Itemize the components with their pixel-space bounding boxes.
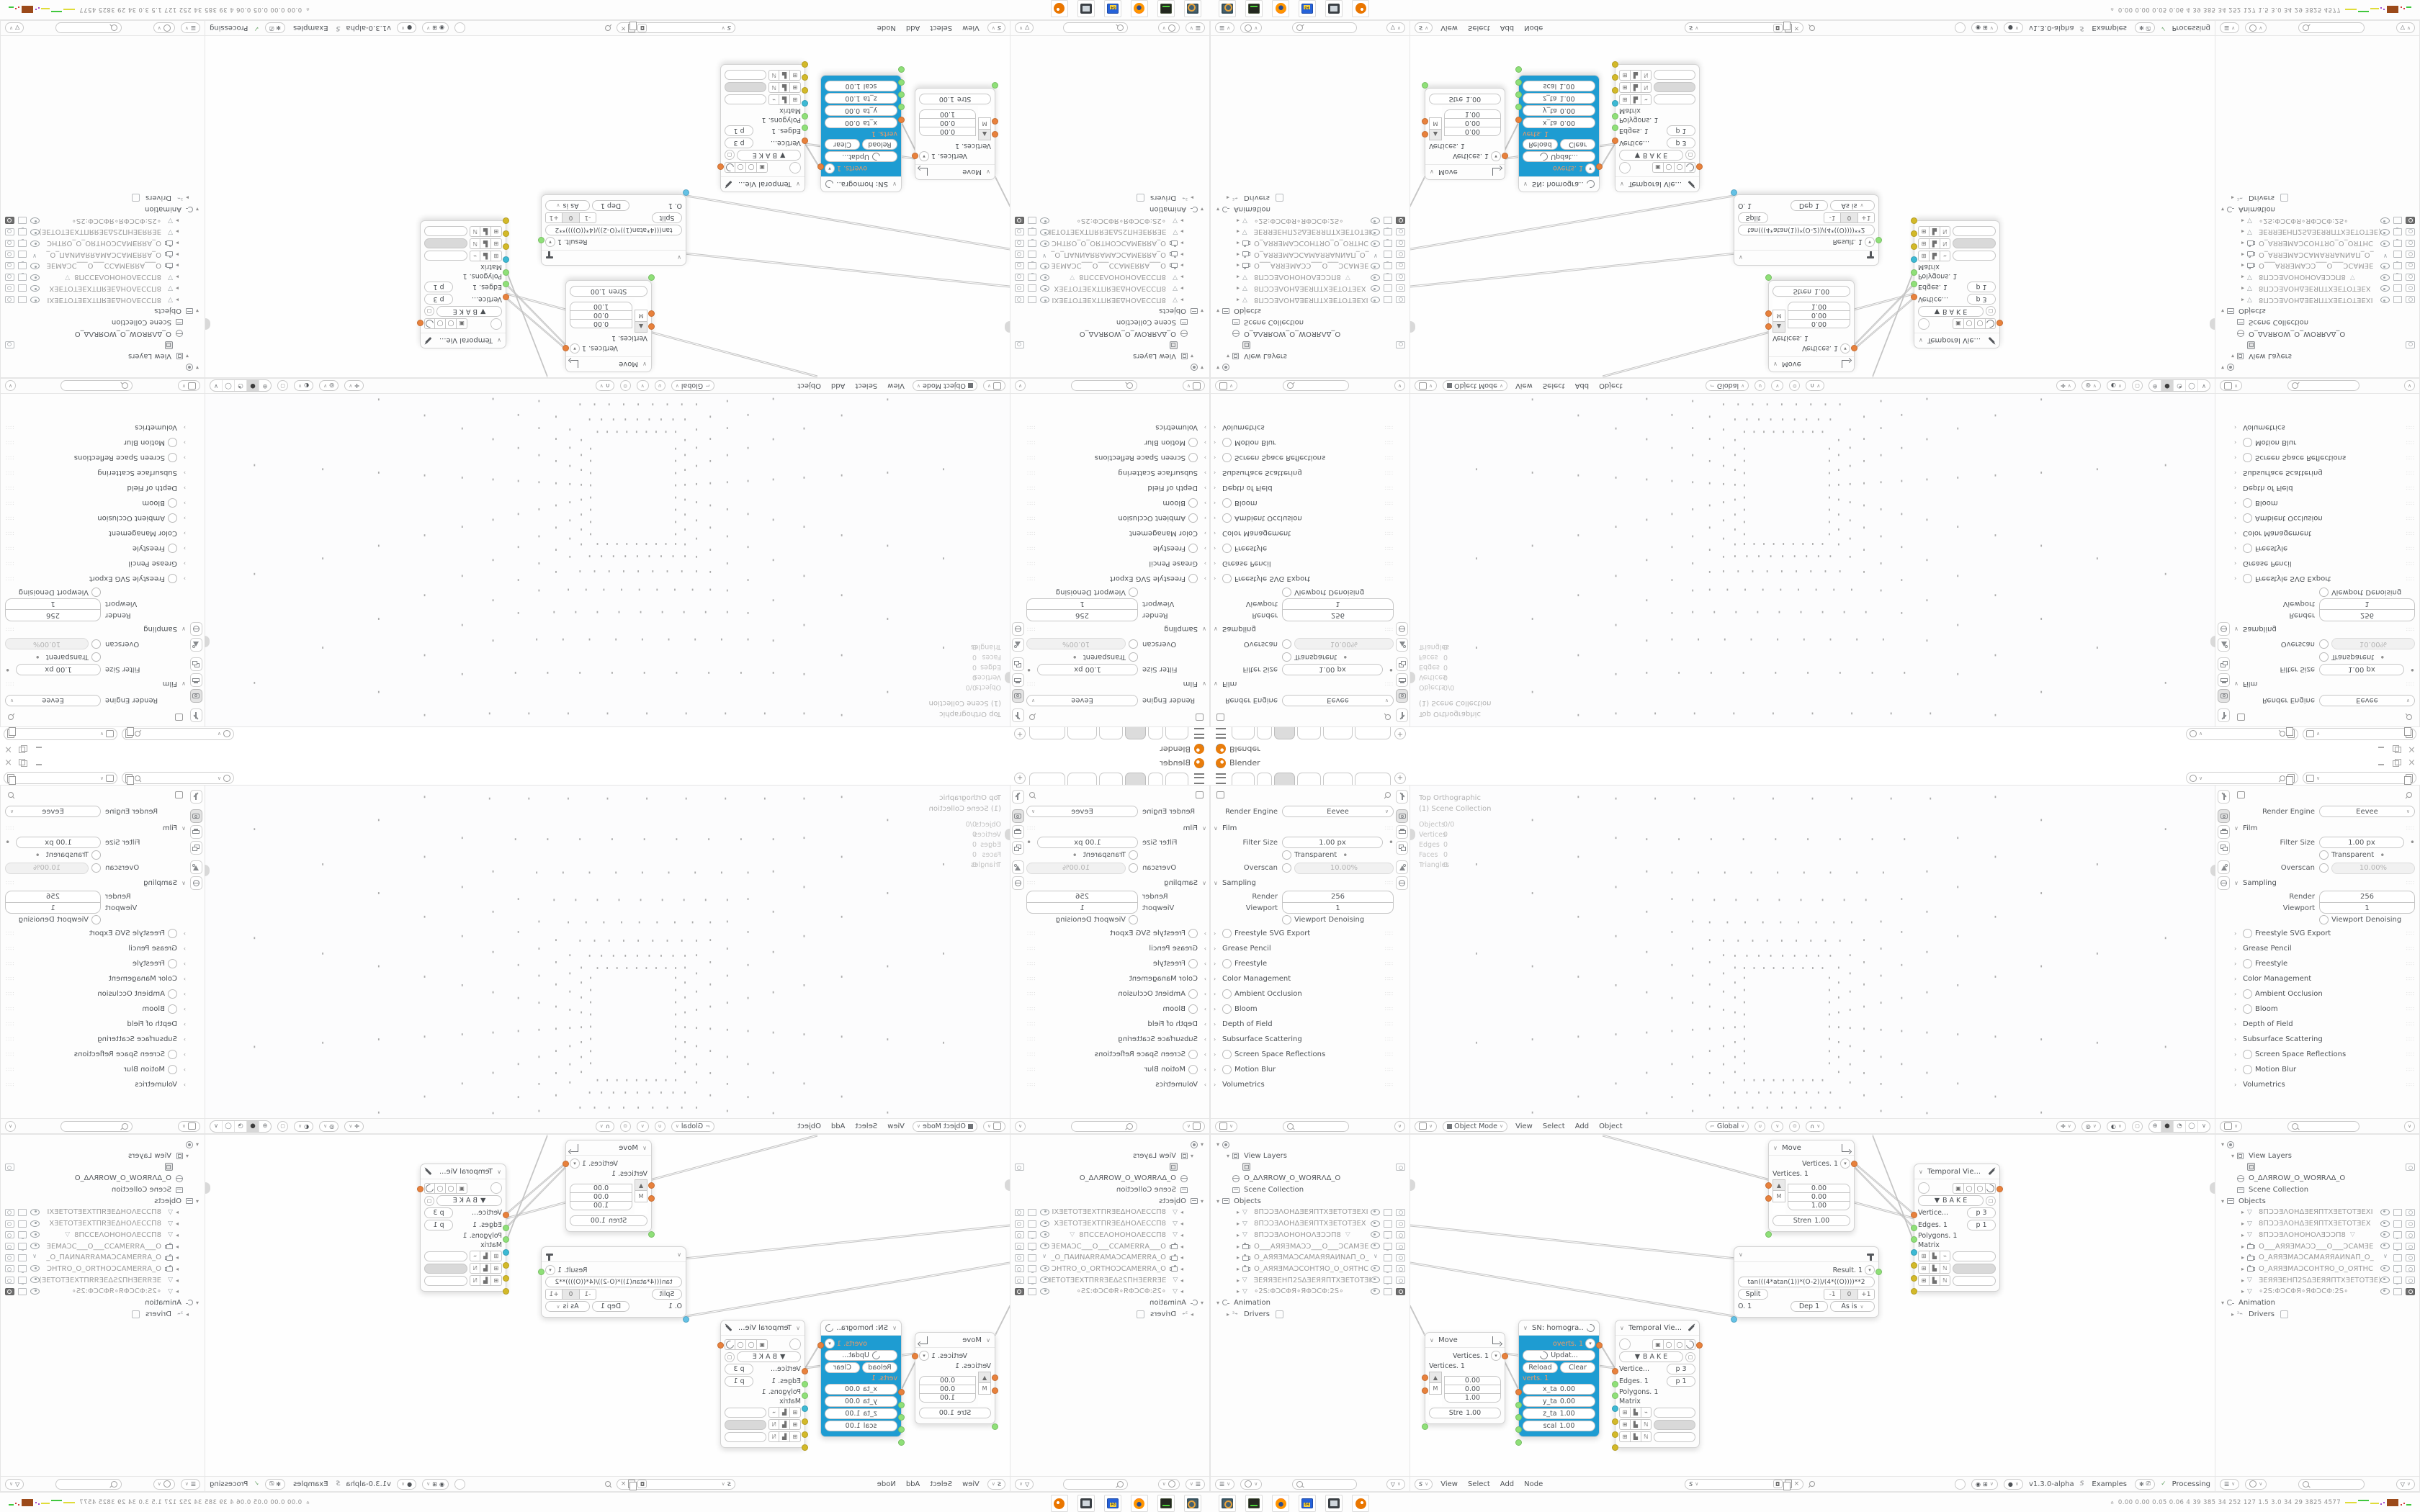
properties-tab-view-layer[interactable] bbox=[1396, 841, 1408, 855]
outliner-row[interactable]: ▾Animation bbox=[1013, 204, 1206, 215]
section-header[interactable]: ›Bloom bbox=[142, 1004, 186, 1014]
hide-toggle-icon[interactable] bbox=[1371, 263, 1380, 269]
hide-toggle-icon[interactable] bbox=[1371, 1231, 1380, 1238]
node-header[interactable]: ∨SN: homogra.. bbox=[1519, 176, 1599, 192]
section-header[interactable]: ∨Sampling bbox=[143, 626, 186, 634]
disable-render-icon[interactable] bbox=[2406, 251, 2415, 258]
outliner-row[interactable]: ▾View Layers bbox=[2218, 351, 2416, 362]
properties-tab-view-layer[interactable] bbox=[2218, 657, 2230, 671]
socket-l[interactable] bbox=[802, 1418, 808, 1425]
hide-toggle-icon[interactable] bbox=[1040, 1254, 1048, 1259]
step-button[interactable]: 0 bbox=[563, 212, 579, 223]
properties-tab-world[interactable] bbox=[2218, 876, 2230, 890]
value-pill[interactable] bbox=[1654, 1420, 1695, 1430]
new-view-layer-icon[interactable] bbox=[2406, 774, 2413, 783]
vector-value[interactable]: 0.00 bbox=[1444, 1376, 1501, 1385]
mode-dropdown[interactable]: As is∨ bbox=[1830, 1301, 1875, 1312]
mode-dropdown[interactable]: As is∨ bbox=[545, 1301, 590, 1312]
checkbox[interactable] bbox=[1188, 929, 1198, 938]
socket-l[interactable] bbox=[1765, 323, 1772, 330]
expand-icon[interactable]: ▸ bbox=[173, 274, 179, 280]
matrix-icon[interactable]: ⊞ bbox=[1918, 226, 1929, 237]
matrix-icon[interactable]: ⊞ bbox=[790, 82, 801, 93]
socket-r[interactable] bbox=[417, 1186, 423, 1192]
matrix-icon[interactable]: ⊞ bbox=[1619, 1407, 1630, 1418]
disable-render-icon[interactable] bbox=[1396, 1265, 1405, 1272]
node-move-2[interactable]: ∨MoveVertices. 1▾Vertices. 1▲M0.000.001.… bbox=[565, 280, 652, 372]
disable-render-icon[interactable] bbox=[5, 1243, 14, 1250]
section-header[interactable]: ›Depth of Field bbox=[1147, 484, 1206, 492]
expand-icon[interactable]: ▸ bbox=[1178, 1220, 1183, 1227]
socket-l[interactable] bbox=[992, 1387, 998, 1394]
checkbox[interactable] bbox=[2319, 639, 2329, 649]
editor-type-button[interactable]: ∨ bbox=[178, 381, 200, 392]
socket-l[interactable] bbox=[802, 1368, 808, 1374]
workspace-tab[interactable] bbox=[1232, 727, 1255, 739]
render-engine-dropdown[interactable]: Eevee bbox=[2319, 695, 2415, 706]
view-layer-selector[interactable]: ∨ bbox=[4, 772, 117, 784]
examples-menu[interactable]: Examples bbox=[2089, 24, 2129, 32]
vector-value[interactable]: 0.00 bbox=[1788, 311, 1850, 320]
tray-expand-icon[interactable]: « bbox=[2108, 1500, 2115, 1505]
menu-add[interactable]: Add bbox=[829, 382, 847, 390]
step-button[interactable]: 0 bbox=[563, 1289, 579, 1300]
hide-toggle-icon[interactable] bbox=[1040, 217, 1049, 224]
search-input[interactable] bbox=[55, 23, 122, 34]
checkbox[interactable] bbox=[1222, 574, 1232, 583]
section-header[interactable]: ›Depth of Field bbox=[2234, 484, 2293, 492]
value-slider[interactable]: scal1.00 bbox=[825, 1421, 897, 1431]
socket-r[interactable] bbox=[538, 237, 544, 243]
section-header[interactable]: ›Freestyle bbox=[1153, 544, 1206, 553]
hide-toggle-icon[interactable] bbox=[1371, 1243, 1380, 1249]
render-preview-toggle[interactable]: ▢ bbox=[2132, 1121, 2143, 1132]
outliner-row[interactable]: ▸O_ΑЯЯƎΜΑϽϹΑΜΑЯЯΑͶΝΑΠ_O_ bbox=[1013, 248, 1206, 260]
strength-slider[interactable]: Stre1.00 bbox=[919, 94, 991, 104]
value-slider[interactable]: x_ta0.00 bbox=[825, 117, 897, 128]
disable-render-icon[interactable] bbox=[1015, 1209, 1024, 1216]
editor-type-button[interactable]: S∨ bbox=[987, 1479, 1005, 1490]
outliner-row[interactable]: Scene Collection bbox=[4, 1184, 202, 1196]
brush-icon[interactable]: ▙ bbox=[480, 1263, 491, 1274]
properties-tab-scene[interactable] bbox=[1012, 638, 1024, 652]
processing-toggle[interactable]: Processing bbox=[210, 1480, 248, 1488]
show-toggle[interactable] bbox=[490, 318, 502, 330]
socket-l[interactable] bbox=[992, 82, 998, 89]
workspace-tab[interactable] bbox=[1323, 727, 1353, 739]
node-temporal-viewer-2[interactable]: ∨Temporal Vie...▣◯◯▼B A K E▢Vertice...p … bbox=[1914, 1164, 2000, 1292]
hide-toggle-icon[interactable] bbox=[2382, 1254, 2390, 1259]
section-header[interactable]: ›Color Management bbox=[1214, 529, 1291, 537]
workspace-tab[interactable] bbox=[1355, 727, 1391, 739]
socket-l[interactable] bbox=[992, 118, 998, 125]
display-mode-dropdown[interactable]: ☰∨ bbox=[2220, 1479, 2239, 1490]
disable-render-icon[interactable] bbox=[5, 1277, 14, 1284]
options-dropdown[interactable]: ∨ bbox=[5, 381, 16, 392]
checkbox[interactable] bbox=[1222, 544, 1232, 553]
expand-icon[interactable]: ▾ bbox=[2221, 1300, 2227, 1306]
expand-icon[interactable]: ▸ bbox=[1178, 1288, 1183, 1295]
node-header[interactable]: ∨Temporal Vie... bbox=[1615, 1320, 1699, 1336]
checkbox[interactable] bbox=[1222, 498, 1232, 508]
disable-viewport-icon[interactable] bbox=[2393, 1243, 2402, 1250]
search-input[interactable] bbox=[1292, 23, 1357, 34]
checkbox[interactable] bbox=[1222, 513, 1232, 523]
node-tree-selector[interactable]: S∨ ◘ × bbox=[1685, 23, 1803, 34]
unlink-icon[interactable]: × bbox=[621, 1480, 627, 1488]
render-engine-dropdown[interactable]: Eevee bbox=[1282, 695, 1394, 706]
mode-icon[interactable]: ▣ bbox=[757, 1339, 768, 1350]
section-header[interactable]: ∨Film bbox=[2234, 824, 2257, 832]
display-mode-group[interactable]: ▣◯◯ bbox=[1652, 1339, 1695, 1350]
properties-tab-render[interactable] bbox=[1396, 689, 1408, 703]
node-formula[interactable]: ∨Result. 1▾tan(((4*atan(1))*(O-2))/(4*((… bbox=[541, 194, 686, 266]
disable-render-icon[interactable] bbox=[1015, 1265, 1024, 1272]
animate-dot-icon[interactable]: • bbox=[1026, 840, 1031, 845]
socket-r[interactable] bbox=[1996, 1186, 2003, 1192]
area-handle[interactable] bbox=[1005, 321, 1010, 333]
proportional-edit-toggle[interactable]: ⊙ bbox=[1789, 381, 1800, 392]
expand-icon[interactable]: ▸ bbox=[2241, 1209, 2247, 1215]
value-field[interactable]: 1 bbox=[5, 598, 101, 610]
outliner-row[interactable]: ▾ bbox=[1214, 1139, 1407, 1151]
section-header[interactable]: ›Screen Space Reflections bbox=[1095, 1050, 1206, 1059]
section-header[interactable]: ›Motion Blur bbox=[124, 438, 186, 447]
mode-icon[interactable]: ◯ bbox=[1663, 163, 1674, 174]
socket-l[interactable] bbox=[648, 274, 655, 281]
properties-tab-tool[interactable] bbox=[1012, 790, 1024, 804]
brush-icon[interactable]: ▙ bbox=[480, 226, 491, 237]
select-button[interactable]: ▢ bbox=[1685, 1352, 1695, 1362]
disable-render-icon[interactable] bbox=[1396, 240, 1405, 247]
taskbar-app-firefox[interactable] bbox=[1272, 0, 1289, 17]
disable-render-icon[interactable] bbox=[1396, 228, 1405, 235]
properties-pin-icon[interactable] bbox=[1028, 713, 1036, 721]
area-handle[interactable] bbox=[2210, 318, 2215, 330]
hide-toggle-icon[interactable] bbox=[30, 1254, 38, 1259]
properties-tab-tool[interactable] bbox=[1396, 708, 1408, 722]
outliner-row[interactable]: ▸O_ΑЯЯƎΜΑϽϹΟΗΤЯΟ_O_ΟЯΤΗϹ bbox=[1214, 238, 1407, 249]
socket-l[interactable] bbox=[503, 1262, 509, 1269]
disable-viewport-icon[interactable] bbox=[18, 274, 27, 281]
formula-input[interactable]: tan(((4*atan(1))*(O-2))/(4*((O))))**2 bbox=[545, 225, 682, 235]
step-button[interactable]: -1 bbox=[1824, 212, 1840, 223]
checkbox[interactable] bbox=[168, 1004, 177, 1014]
properties-pin-icon[interactable] bbox=[1384, 713, 1391, 721]
area-handle[interactable] bbox=[2210, 1182, 2215, 1194]
filter-icon-dropdown[interactable]: ∨ bbox=[1158, 23, 1180, 34]
matrix-icon[interactable]: ⊞ bbox=[491, 1251, 502, 1261]
disable-viewport-icon[interactable] bbox=[2393, 1254, 2402, 1261]
value-pill[interactable] bbox=[725, 1420, 766, 1430]
menu-view[interactable]: View bbox=[960, 24, 982, 32]
value-pill[interactable] bbox=[424, 1264, 467, 1274]
disable-viewport-icon[interactable] bbox=[18, 251, 27, 258]
socket-l[interactable] bbox=[898, 1414, 905, 1421]
options-dropdown[interactable]: ∨ bbox=[1394, 1121, 1405, 1132]
processing-toggle[interactable]: Processing bbox=[210, 24, 248, 32]
curve-icon[interactable]: ℕ bbox=[768, 70, 779, 81]
properties-tab-scene[interactable] bbox=[1012, 860, 1024, 874]
overlays-dropdown[interactable]: ◎∨ bbox=[2081, 1121, 2101, 1132]
socket-l[interactable] bbox=[1515, 1439, 1522, 1446]
hide-toggle-icon[interactable] bbox=[2380, 263, 2390, 269]
section-header[interactable]: ›Color Management bbox=[2234, 975, 2311, 983]
vector-value[interactable]: 0.00 bbox=[570, 1193, 632, 1202]
value-pill[interactable] bbox=[424, 1276, 467, 1286]
snap-toggle[interactable]: ∪ bbox=[655, 381, 665, 392]
section-header[interactable]: ›Grease Pencil bbox=[1214, 945, 1271, 953]
value-slider[interactable]: 1.00 px bbox=[16, 664, 101, 675]
show-toggle[interactable] bbox=[490, 1182, 502, 1194]
taskbar-app-system-monitor[interactable] bbox=[1184, 1495, 1201, 1512]
workspace-tab[interactable] bbox=[1274, 727, 1295, 739]
section-header[interactable]: ›Screen Space Reflections bbox=[2234, 1050, 2346, 1059]
checkbox[interactable] bbox=[91, 639, 101, 649]
section-header[interactable]: ∨Film bbox=[2234, 680, 2257, 688]
menu-add[interactable]: Add bbox=[1498, 24, 1516, 32]
mode-dropdown[interactable]: Object Mode∨ bbox=[1443, 1121, 1507, 1132]
matrix-icon[interactable]: ⊞ bbox=[1918, 238, 1929, 249]
disable-viewport-icon[interactable] bbox=[2393, 284, 2402, 292]
socket-l[interactable] bbox=[1612, 87, 1618, 94]
checkbox[interactable] bbox=[1129, 863, 1138, 873]
disable-viewport-icon[interactable] bbox=[1384, 228, 1392, 235]
mode-icon[interactable]: ◯ bbox=[735, 163, 746, 174]
workspace-tab[interactable] bbox=[1297, 773, 1321, 785]
socket-l[interactable] bbox=[503, 256, 509, 263]
expand-icon[interactable]: ▸ bbox=[2241, 1277, 2247, 1284]
filter-icon-dropdown[interactable]: ∨ bbox=[2245, 23, 2267, 34]
disable-viewport-icon[interactable] bbox=[2393, 217, 2402, 224]
outliner-row[interactable]: Scene Collection bbox=[1013, 1184, 1206, 1196]
node-formula[interactable]: ∨Result. 1▾tan(((4*atan(1))*(O-2))/(4*((… bbox=[1734, 194, 1879, 266]
node-editor[interactable]: ∨MoveVertices. 1▾Vertices. 1▲M0.000.001.… bbox=[1410, 1134, 2215, 1492]
socket-l[interactable] bbox=[503, 243, 509, 250]
outliner-row[interactable]: ▸▽ƎΕЯЯƎΕΗΠ2ЅΔƎΕЯЯΠΤΧƎΕΤΟΤƎΕ) bbox=[2218, 226, 2416, 238]
refresh-icon[interactable] bbox=[1685, 1339, 1695, 1350]
outliner-row[interactable]: ▸▽8ΠϽϽƎΛΟΗΔƎΕЯΠΤΧƎΕΤΟΤƎΕΧ bbox=[2218, 1218, 2416, 1230]
editor-type-button[interactable]: ∨ bbox=[2220, 1121, 2242, 1132]
disable-render-icon[interactable] bbox=[2406, 228, 2415, 235]
disable-render-icon[interactable] bbox=[2406, 262, 2415, 269]
step-button[interactable]: +1 bbox=[545, 212, 563, 223]
node-editor[interactable]: ∨MoveVertices. 1▾Vertices. 1▲M0.000.001.… bbox=[205, 20, 1010, 378]
brush-icon[interactable]: ▙ bbox=[779, 1419, 790, 1430]
sv-tools-dropdown[interactable]: ✻⎚ bbox=[2135, 1479, 2155, 1490]
socket-r[interactable] bbox=[563, 345, 569, 351]
hide-toggle-icon[interactable] bbox=[1371, 1288, 1380, 1295]
node-sn-homography[interactable]: ∨SN: homogra..overts. 1▾Updat...ReloadCl… bbox=[820, 75, 902, 192]
hide-toggle-icon[interactable] bbox=[1371, 1220, 1380, 1227]
step-group[interactable]: -10+1 bbox=[1824, 1289, 1875, 1300]
add-workspace-button[interactable]: + bbox=[1394, 728, 1406, 739]
curve-icon[interactable]: ℕ bbox=[470, 238, 480, 249]
socket-l[interactable] bbox=[1911, 217, 1917, 224]
node-formula[interactable]: ∨Result. 1▾tan(((4*atan(1))*(O-2))/(4*((… bbox=[541, 1246, 686, 1318]
disable-render-icon[interactable] bbox=[2406, 284, 2415, 292]
copy-tree-icon[interactable] bbox=[1785, 1480, 1792, 1488]
taskbar-app-blender[interactable] bbox=[1352, 1495, 1369, 1512]
outliner-row[interactable]: ▸▽ƎΕЯЯƎΕΗΠ2ЅΔƎΕЯЯΠΤΧƎΕΤΟΤƎΕ) bbox=[2218, 1274, 2416, 1286]
checkbox[interactable] bbox=[1222, 1065, 1232, 1074]
menu-select[interactable]: Select bbox=[853, 382, 879, 390]
socket-r[interactable] bbox=[1875, 1269, 1882, 1275]
outliner-row[interactable]: ▸▽8ΠϽϽƎΛΟΗΔƎΕЯΠΤΧƎΕΤΟΤƎΕΧ bbox=[4, 1218, 202, 1230]
copy-tree-icon[interactable] bbox=[1785, 24, 1792, 32]
menu-object[interactable]: Object bbox=[1597, 382, 1625, 390]
filter-dropdown[interactable]: ▽∨ bbox=[1015, 1479, 1034, 1490]
search-input[interactable] bbox=[1292, 1479, 1357, 1490]
section-header[interactable]: ›Screen Space Reflections bbox=[1095, 453, 1206, 462]
socket-r[interactable] bbox=[1696, 1342, 1703, 1349]
section-header[interactable]: ›Motion Blur bbox=[124, 1065, 186, 1074]
properties-tab-world[interactable] bbox=[2218, 622, 2230, 636]
disable-viewport-icon[interactable] bbox=[1384, 1209, 1392, 1216]
area-handle[interactable] bbox=[205, 318, 210, 330]
split-button[interactable]: Split bbox=[1738, 1289, 1768, 1300]
socket-menu-button[interactable]: ▾ bbox=[1840, 343, 1850, 354]
menu-add[interactable]: Add bbox=[1573, 382, 1591, 390]
vector-value[interactable]: 1.00 bbox=[919, 1394, 976, 1403]
expand-icon[interactable]: ▸ bbox=[1237, 1266, 1242, 1272]
brush-icon[interactable]: ▙ bbox=[480, 238, 491, 249]
outliner-row[interactable]: ▸O_ΑЯЯƎΜΑϽϹΑΜΑЯЯΑͶΝΑΠ_O_ bbox=[1214, 1252, 1407, 1264]
mode-icon[interactable]: ▣ bbox=[1652, 1339, 1663, 1350]
section-header[interactable]: ›Subsurface Scattering bbox=[2234, 1035, 2323, 1043]
strength-slider[interactable]: Stren1.00 bbox=[570, 286, 647, 297]
outliner-row[interactable]: ▸O___ΑЯЯƎΜΑϽϽ___O___ϽϹΑΜƎΕ bbox=[1214, 1241, 1407, 1252]
value-slider[interactable]: y_ta0.00 bbox=[1523, 1396, 1595, 1407]
filter-dropdown[interactable]: ▽∨ bbox=[5, 23, 24, 34]
clear-button[interactable]: Clear bbox=[1560, 139, 1595, 150]
animate-dot-icon[interactable]: • bbox=[1072, 655, 1077, 660]
expand-icon[interactable]: ▸ bbox=[1237, 297, 1242, 303]
search-input[interactable] bbox=[1063, 1479, 1128, 1490]
value-field[interactable]: 1 bbox=[5, 902, 101, 914]
socket-l[interactable] bbox=[1515, 104, 1522, 110]
section-header[interactable]: ›Screen Space Reflections bbox=[74, 1050, 186, 1059]
render-preview-toggle[interactable]: ▢ bbox=[277, 381, 288, 392]
checkbox[interactable] bbox=[1188, 1065, 1198, 1074]
vector-value[interactable]: 0.00 bbox=[570, 320, 632, 329]
outliner-row[interactable]: ▾View Layers bbox=[4, 1151, 202, 1162]
properties-tab-world[interactable] bbox=[1396, 876, 1408, 890]
xray-shading-dropdown[interactable]: ◐∨ bbox=[2107, 1121, 2126, 1132]
checkbox[interactable] bbox=[2243, 513, 2252, 523]
expand-icon[interactable]: ▸ bbox=[2231, 194, 2237, 201]
disable-viewport-icon[interactable] bbox=[2393, 1220, 2402, 1228]
brush-icon[interactable]: ▙ bbox=[1630, 94, 1641, 105]
filter-dropdown[interactable]: ▽∨ bbox=[5, 1479, 24, 1490]
outliner-row[interactable]: ▸▽ƎΕЯЯƎΕΗΠ2ЅΔƎΕЯЯΠΤΧƎΕΤΟΤƎΕ) bbox=[4, 1274, 202, 1286]
outliner-row[interactable]: ▾Objects bbox=[2218, 1195, 2416, 1207]
menu-hamburger-icon[interactable] bbox=[1216, 728, 1226, 739]
node-header[interactable]: ∨Move bbox=[915, 1333, 995, 1348]
taskbar-app-floppy-64[interactable]: 64 bbox=[1299, 1495, 1316, 1512]
hide-toggle-icon[interactable] bbox=[1040, 263, 1049, 269]
expand-icon[interactable]: ▾ bbox=[1198, 1141, 1204, 1148]
expand-icon[interactable]: ▸ bbox=[2241, 251, 2247, 258]
disable-viewport-icon[interactable] bbox=[2393, 296, 2402, 303]
minimize-button[interactable] bbox=[2378, 745, 2385, 753]
show-toggle[interactable] bbox=[1918, 318, 1930, 330]
hide-toggle-icon[interactable] bbox=[2380, 285, 2390, 292]
expand-icon[interactable]: ▸ bbox=[183, 1311, 189, 1318]
outliner-row[interactable]: ▸▽8ΠϽϽƎΛΟΗΟΗΟΛƎϽϽΠ8 ▽ bbox=[1013, 271, 1206, 283]
socket-l[interactable] bbox=[1612, 1431, 1618, 1438]
xray-shading-dropdown[interactable]: ◐∨ bbox=[294, 381, 313, 392]
section-header[interactable]: ›Motion Blur bbox=[2234, 1065, 2296, 1074]
outliner-row[interactable]: ▸▽8ΠϽϽƎΛΟΗΔƎΕЯΠΤΧƎΕΤΟΤƎΕΧ bbox=[1013, 1218, 1206, 1230]
brush-icon[interactable]: ▙ bbox=[779, 1431, 790, 1442]
outliner-row[interactable]: O_ΔΛЯROW_O_WOЯRΛΔ_O bbox=[2218, 1173, 2416, 1184]
value-pill[interactable] bbox=[725, 95, 766, 105]
expand-icon[interactable]: ▸ bbox=[1178, 285, 1183, 292]
outliner-row[interactable]: ▸O___ΑЯЯƎΜΑϽϽ___O___ϽϹΑΜƎΕ bbox=[1013, 1241, 1206, 1252]
workspace-tab[interactable] bbox=[1148, 773, 1163, 785]
disable-viewport-icon[interactable] bbox=[2393, 1277, 2402, 1284]
sv-circle-button[interactable] bbox=[454, 1479, 465, 1490]
minimize-button[interactable] bbox=[2378, 759, 2385, 767]
mode-dropdown[interactable]: Object Mode∨ bbox=[913, 1121, 977, 1132]
options-dropdown[interactable]: ∨ bbox=[2404, 1121, 2415, 1132]
socket-menu-button[interactable]: ▾ bbox=[825, 163, 835, 174]
expand-icon[interactable]: ▾ bbox=[1216, 206, 1222, 212]
disable-viewport-icon[interactable] bbox=[1384, 1220, 1392, 1228]
expand-icon[interactable]: ▸ bbox=[1178, 217, 1183, 224]
outliner-row[interactable] bbox=[4, 339, 202, 351]
taskbar-app-firefox[interactable] bbox=[1131, 1495, 1148, 1512]
expand-icon[interactable]: ▸ bbox=[173, 285, 179, 292]
disable-render-icon[interactable] bbox=[1396, 284, 1405, 292]
socket-r[interactable] bbox=[1851, 345, 1857, 351]
sv-user-dropdown[interactable]: ●∨ bbox=[2004, 23, 2023, 34]
expand-icon[interactable]: ▸ bbox=[1178, 228, 1183, 235]
orientation-dropdown[interactable]: ⌐Global∨ bbox=[671, 381, 714, 392]
checkbox[interactable] bbox=[168, 1050, 177, 1059]
outliner-row[interactable]: ▸▽8ΠϽϽƎΛΟΗΔƎΕЯΠΤΧƎΕΤΟΤƎΕΧ bbox=[1013, 283, 1206, 294]
disable-render-icon[interactable] bbox=[2406, 240, 2415, 247]
section-header[interactable]: ›Grease Pencil bbox=[2234, 945, 2292, 953]
socket-menu-button[interactable]: ▾ bbox=[570, 343, 580, 354]
outliner-row[interactable]: ▸▽8ΠϽϽƎΛΟΗΔƎΕЯΠΤΧƎΕΤΟΤƎΕΧΙ bbox=[1214, 294, 1407, 305]
mode-icon[interactable]: ◯ bbox=[746, 163, 757, 174]
value-pill[interactable] bbox=[725, 1432, 766, 1442]
checkbox[interactable] bbox=[1282, 915, 1291, 924]
socket-l[interactable] bbox=[1731, 1316, 1737, 1323]
properties-tab-output[interactable] bbox=[2218, 825, 2230, 839]
expand-icon[interactable]: ▸ bbox=[173, 1288, 179, 1295]
snap-toggle[interactable]: ∪ bbox=[1754, 381, 1765, 392]
outliner-row[interactable]: ▾View Layers bbox=[1214, 1151, 1407, 1162]
close-button[interactable]: × bbox=[2408, 759, 2416, 767]
socket-l[interactable] bbox=[1911, 243, 1917, 250]
animate-dot-icon[interactable]: • bbox=[2410, 667, 2415, 672]
socket-l[interactable] bbox=[1612, 1368, 1618, 1374]
editor-type-button[interactable]: ∨ bbox=[178, 1121, 200, 1132]
disable-viewport-icon[interactable] bbox=[2393, 251, 2402, 258]
properties-tab-world[interactable] bbox=[1012, 622, 1024, 636]
vector-value[interactable]: 0.00 bbox=[1444, 127, 1501, 137]
socket-l[interactable] bbox=[1911, 1249, 1917, 1256]
disable-viewport-icon[interactable] bbox=[1028, 1288, 1036, 1295]
expand-icon[interactable]: ▾ bbox=[1216, 364, 1222, 371]
properties-tab-output[interactable] bbox=[190, 825, 202, 839]
outliner-row[interactable]: ▸▽8ΠϽϽƎΛΟΗΔƎΕЯΠΤΧƎΕΤΟΤƎΕΧΙ bbox=[2218, 294, 2416, 305]
hide-toggle-icon[interactable] bbox=[2380, 297, 2390, 303]
expand-icon[interactable]: ▾ bbox=[2221, 364, 2227, 371]
